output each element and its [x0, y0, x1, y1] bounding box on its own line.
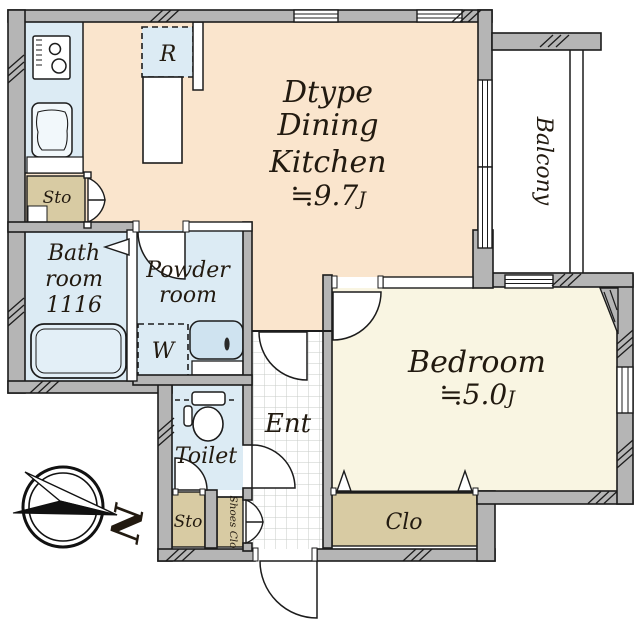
balcony-railing — [570, 42, 583, 280]
stove-icon — [33, 36, 70, 79]
wall-stub-kitchen — [193, 22, 203, 90]
label-balcony: Balcony — [531, 116, 556, 206]
washbasin-icon — [190, 321, 243, 375]
label-shoes-closet: Shoes Clo — [227, 496, 239, 549]
label-dk-line3: Kitchen — [268, 145, 386, 180]
bathtub-icon — [31, 324, 126, 378]
label-bath-line2: room — [45, 267, 103, 292]
floor-plan-canvas: Dtype Dining Kitchen ≒9.7J Bedroom ≒5.0J… — [0, 0, 640, 631]
label-bedroom: Bedroom — [407, 345, 546, 380]
label-powder-line2: room — [159, 283, 217, 308]
label-bath-line3: 1116 — [46, 293, 102, 318]
label-washer: W — [152, 339, 177, 364]
kitchen-island-counter — [143, 77, 182, 163]
kitchen-sink-icon — [32, 103, 72, 157]
label-refrigerator: R — [159, 42, 177, 67]
label-toilet: Toilet — [175, 444, 237, 469]
label-bedroom-area: ≒5.0J — [439, 378, 516, 411]
label-storage-hall: Sto — [174, 512, 203, 532]
label-dk-line1: Dtype — [282, 75, 373, 110]
label-bath-line1: Bath — [47, 241, 100, 266]
label-storage-kitchen: Sto — [43, 188, 72, 208]
counter-end — [27, 157, 83, 173]
entrance-door-arc — [260, 561, 317, 618]
label-north: N — [99, 499, 152, 547]
floor-plan: Dtype Dining Kitchen ≒9.7J Bedroom ≒5.0J… — [0, 0, 640, 631]
bedroom-top-white-wall — [383, 277, 473, 288]
powder-top-white-wall — [187, 222, 252, 231]
label-powder-line1: Powder — [145, 258, 231, 283]
label-dk-line2: Dining — [276, 108, 378, 143]
label-entrance: Ent — [264, 409, 312, 439]
label-dk-area: ≒9.7J — [290, 179, 367, 212]
label-closet: Clo — [385, 510, 422, 535]
